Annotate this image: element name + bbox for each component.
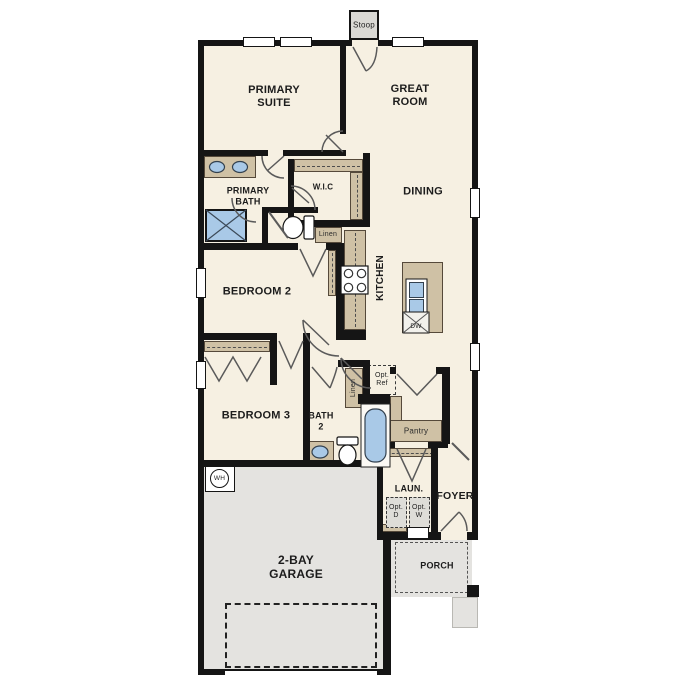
- wall: [270, 333, 277, 385]
- wall: [198, 40, 352, 46]
- bedroom3-label: BEDROOM 3: [222, 410, 290, 423]
- great-room-label: GREAT ROOM: [391, 83, 430, 109]
- front-door-opening: [441, 532, 467, 540]
- porch-post: [467, 585, 479, 597]
- wall: [377, 442, 383, 534]
- window: [196, 361, 206, 389]
- wall: [198, 150, 268, 156]
- wall: [198, 40, 204, 675]
- bedroom2-closet-shelf: [328, 250, 336, 296]
- water-heater-label: WH: [214, 475, 225, 483]
- wall: [303, 333, 310, 467]
- window: [280, 37, 312, 47]
- stoop-door-gap: [352, 40, 378, 46]
- wall: [336, 330, 366, 340]
- kitchen-counter: [344, 230, 366, 330]
- wall: [338, 360, 370, 367]
- laundry-shelf: [384, 448, 436, 457]
- opt-d-label: Opt. D: [389, 504, 403, 521]
- primary-suite-label: PRIMARY SUITE: [248, 84, 300, 110]
- kitchen-label: KITCHEN: [375, 255, 387, 301]
- stoop-label: Stoop: [353, 20, 375, 29]
- kitchen-island: [402, 262, 443, 333]
- wall: [383, 532, 391, 675]
- garage-label: 2-BAY GARAGE: [269, 553, 323, 581]
- wall: [288, 220, 370, 227]
- wall: [384, 394, 390, 444]
- wall: [336, 243, 344, 340]
- garage-door-opening: [225, 669, 377, 675]
- linen-bath2-label: Linen: [350, 379, 358, 397]
- window: [196, 268, 206, 298]
- wall: [262, 207, 318, 213]
- bath2-label: BATH 2: [308, 410, 333, 431]
- porch-step: [452, 597, 478, 628]
- wic-shelf: [350, 172, 363, 220]
- pantry-shelf: [390, 396, 402, 422]
- window: [470, 188, 480, 218]
- foyer-label: FOYER: [436, 490, 473, 502]
- linen-label: Linen: [319, 231, 337, 239]
- bedroom3-closet-shelf: [204, 341, 270, 352]
- window: [392, 37, 424, 47]
- primary-bath-vanity: [204, 156, 256, 178]
- wall: [363, 153, 370, 227]
- laundry-label: LAUN.: [395, 484, 424, 495]
- dishwasher-label: DW: [410, 323, 421, 331]
- opt-w-label: Opt. W: [412, 504, 426, 521]
- opt-ref-label: Opt. Ref: [375, 372, 389, 389]
- wic-shelf: [294, 159, 363, 172]
- wall: [472, 40, 478, 540]
- window: [243, 37, 275, 47]
- garage-door-outline: [225, 603, 377, 668]
- wall: [198, 333, 277, 340]
- porch-label: PORCH: [420, 561, 454, 572]
- primary-bath-label: PRIMARY BATH: [227, 185, 270, 206]
- wic-label: W.I.C: [313, 182, 334, 191]
- window: [470, 343, 480, 371]
- wall: [340, 40, 346, 134]
- wall: [198, 243, 298, 250]
- laundry-exterior-door: [407, 527, 429, 539]
- pantry-label: Pantry: [404, 426, 428, 435]
- wall: [283, 150, 346, 156]
- floor-plan: Stoop PRIMARY SUITE GREAT ROOM PRIMARY B…: [0, 0, 687, 687]
- wall: [442, 367, 450, 444]
- bedroom2-label: BEDROOM 2: [223, 286, 291, 299]
- dining-label: DINING: [403, 186, 443, 199]
- wall: [390, 367, 396, 374]
